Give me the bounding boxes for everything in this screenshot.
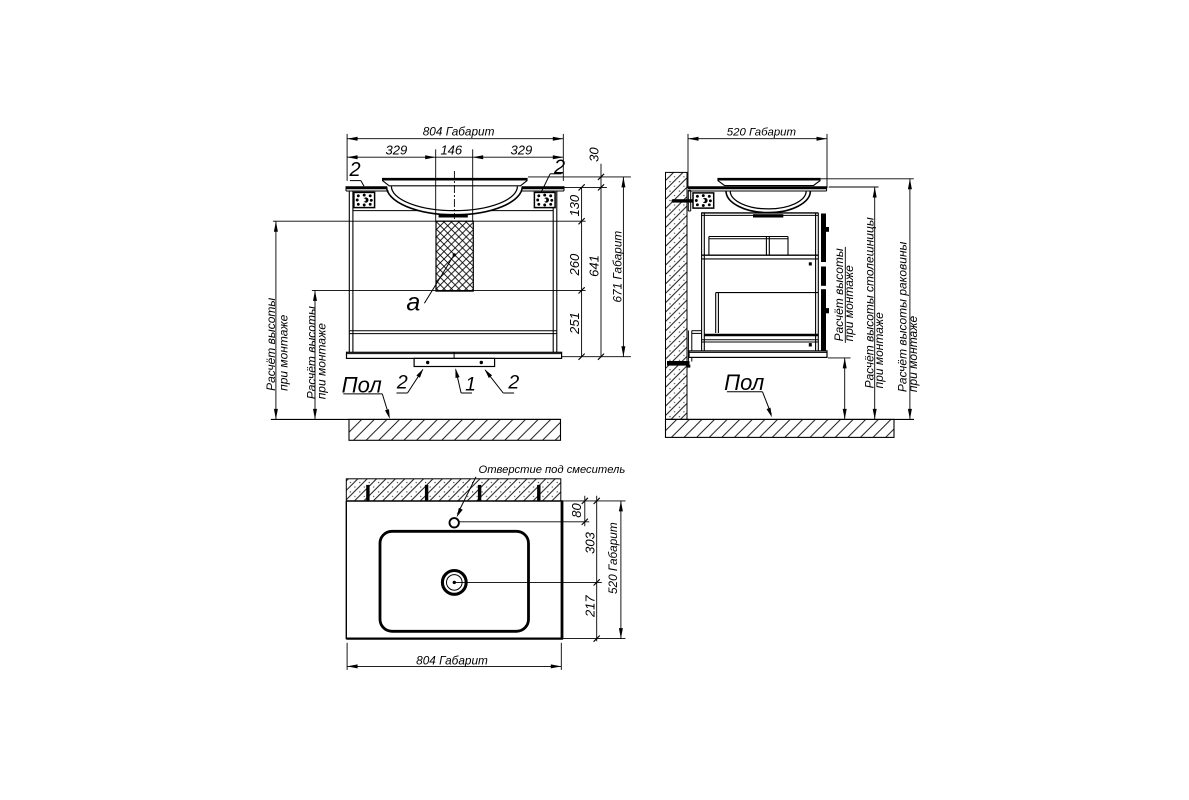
svg-text:641: 641 bbox=[587, 255, 602, 277]
svg-text:130: 130 bbox=[567, 194, 582, 216]
svg-text:217: 217 bbox=[583, 595, 598, 618]
svg-text:2: 2 bbox=[396, 371, 408, 393]
svg-text:Отверстие под смеситель: Отверстие под смеситель bbox=[479, 464, 626, 476]
svg-text:при монтаже: при монтаже bbox=[314, 323, 328, 400]
svg-text:a: a bbox=[406, 289, 420, 317]
svg-text:329: 329 bbox=[386, 143, 408, 158]
svg-text:80: 80 bbox=[569, 503, 584, 518]
svg-text:804 Габарит: 804 Габарит bbox=[423, 125, 495, 139]
svg-text:при монтаже: при монтаже bbox=[906, 316, 920, 393]
svg-text:520 Габарит: 520 Габарит bbox=[727, 127, 796, 139]
svg-text:520 Габарит: 520 Габарит bbox=[606, 522, 620, 594]
svg-text:303: 303 bbox=[583, 531, 598, 553]
svg-text:251: 251 bbox=[567, 312, 582, 335]
svg-text:2: 2 bbox=[348, 159, 360, 181]
svg-text:30: 30 bbox=[587, 147, 602, 162]
svg-text:804 Габарит: 804 Габарит bbox=[416, 653, 488, 667]
svg-text:1: 1 bbox=[465, 374, 476, 396]
svg-text:при монтаже: при монтаже bbox=[842, 265, 856, 342]
svg-text:260: 260 bbox=[567, 253, 582, 276]
svg-text:при монтаже: при монтаже bbox=[276, 314, 290, 391]
svg-text:при монтаже: при монтаже bbox=[872, 312, 886, 389]
svg-text:146: 146 bbox=[440, 143, 462, 158]
svg-text:2: 2 bbox=[507, 371, 519, 393]
svg-text:329: 329 bbox=[511, 143, 533, 158]
svg-text:671 Габарит: 671 Габарит bbox=[610, 231, 624, 303]
